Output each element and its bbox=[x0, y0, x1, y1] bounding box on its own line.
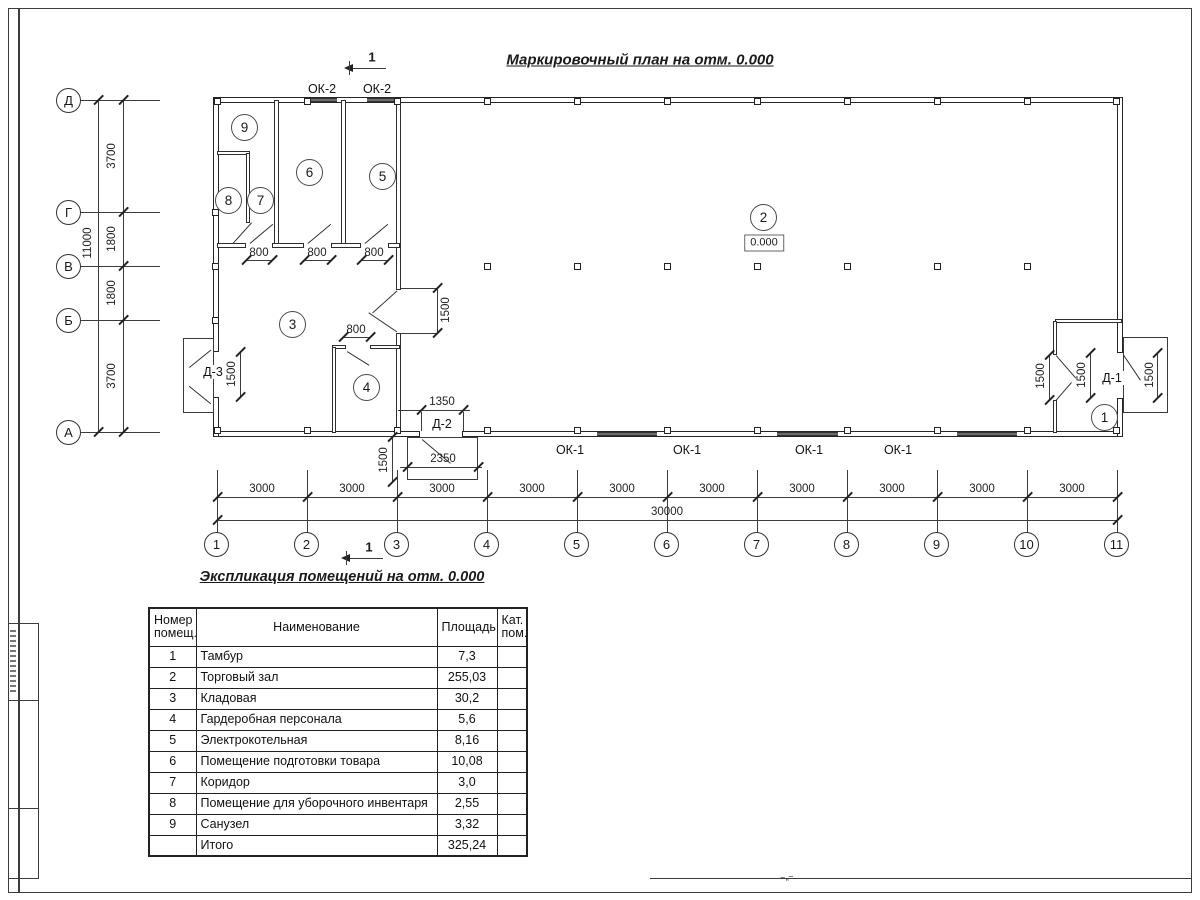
column-marker bbox=[664, 263, 671, 270]
room-area-cell: 30,2 bbox=[437, 688, 497, 709]
titleblock-top-line bbox=[650, 878, 1191, 879]
axis-circle-11: 11 bbox=[1104, 532, 1129, 557]
axis-circle-1: 1 bbox=[204, 532, 229, 557]
room-name-cell: Кладовая bbox=[196, 688, 437, 709]
dim-800: 800 bbox=[346, 324, 365, 336]
room-area-cell: 8,16 bbox=[437, 730, 497, 751]
dim-2350: 2350 bbox=[430, 453, 456, 465]
table-header-row: Номер помещ. Наименование Площадь Кат. п… bbox=[149, 608, 527, 646]
dim-ext-line bbox=[401, 288, 437, 289]
window-label-ok1: ОК-1 bbox=[671, 443, 703, 457]
axis-line bbox=[307, 470, 308, 533]
room-marker-4: 4 bbox=[353, 374, 380, 401]
total-empty-cell bbox=[149, 835, 196, 856]
wall-left-upper bbox=[213, 97, 219, 352]
room-number: 9 bbox=[241, 120, 249, 135]
axis-circle-g: Г bbox=[56, 200, 81, 225]
room-name-cell: Электрокотельная bbox=[196, 730, 437, 751]
partition-corridor-seg4 bbox=[388, 243, 400, 248]
axis-circle-4: 4 bbox=[474, 532, 499, 557]
column-marker bbox=[574, 263, 581, 270]
dim-3000: 3000 bbox=[789, 483, 815, 495]
axis-circle-8: 8 bbox=[834, 532, 859, 557]
column-marker bbox=[484, 98, 491, 105]
dim-1800: 1800 bbox=[106, 226, 118, 252]
column-marker bbox=[664, 98, 671, 105]
window-label-ok1: ОК-1 bbox=[554, 443, 586, 457]
axis-number: 1 bbox=[213, 537, 220, 552]
axis-number: 6 bbox=[663, 537, 670, 552]
header-area: Площадь bbox=[437, 608, 497, 646]
room-number-cell: 3 bbox=[149, 688, 196, 709]
dim-3700: 3700 bbox=[106, 363, 118, 389]
section-mark-number: 1 bbox=[368, 50, 375, 65]
dim-1500: 1500 bbox=[440, 297, 452, 323]
column-marker bbox=[394, 98, 401, 105]
door-leaf bbox=[250, 224, 274, 244]
axis-circle-5: 5 bbox=[564, 532, 589, 557]
axis-number: 8 bbox=[843, 537, 850, 552]
dim-ext-line bbox=[463, 412, 464, 431]
dim-line-1500 bbox=[392, 437, 393, 482]
table-row: 1 Тамбур 7,3 bbox=[149, 646, 527, 667]
stamp-box-line bbox=[38, 623, 39, 878]
table-row: 2 Торговый зал 255,03 bbox=[149, 667, 527, 688]
frame-bottom-line bbox=[8, 892, 1192, 893]
column-marker bbox=[212, 317, 219, 324]
dim-3000: 3000 bbox=[1059, 483, 1085, 495]
room-area-cell: 10,08 bbox=[437, 751, 497, 772]
room-number: 8 bbox=[225, 193, 233, 208]
room-number-cell: 6 bbox=[149, 751, 196, 772]
room-name-cell: Санузел bbox=[196, 814, 437, 835]
axis-circle-3: 3 bbox=[384, 532, 409, 557]
column-marker bbox=[844, 98, 851, 105]
dim-3000: 3000 bbox=[339, 483, 365, 495]
dim-line-1500 bbox=[1090, 353, 1091, 398]
room-marker-7: 7 bbox=[247, 187, 274, 214]
partition-room4-left bbox=[332, 347, 336, 433]
window-ok1 bbox=[777, 432, 838, 436]
dim-11000: 11000 bbox=[82, 227, 94, 258]
axis-letter: Г bbox=[65, 205, 72, 220]
window-label-ok1: ОК-1 bbox=[882, 443, 914, 457]
room-number-cell: 4 bbox=[149, 709, 196, 730]
elevation-mark: 0.000 bbox=[744, 235, 784, 252]
partition-corridor-seg2 bbox=[272, 243, 304, 248]
column-marker bbox=[1024, 98, 1031, 105]
door-leaf bbox=[365, 224, 389, 244]
axis-circle-7: 7 bbox=[744, 532, 769, 557]
dim-3000: 3000 bbox=[969, 483, 995, 495]
dim-1500: 1500 bbox=[226, 361, 238, 387]
table-row: 7 Коридор 3,0 bbox=[149, 772, 527, 793]
header-category: Кат. пом. bbox=[497, 608, 527, 646]
dim-1800: 1800 bbox=[106, 280, 118, 306]
dim-3000: 3000 bbox=[879, 483, 905, 495]
axis-number: 2 bbox=[303, 537, 310, 552]
dim-800: 800 bbox=[249, 247, 268, 259]
dim-3000: 3000 bbox=[699, 483, 725, 495]
dim-3000: 3000 bbox=[609, 483, 635, 495]
plan-title: Маркировочный план на отм. 0.000 bbox=[506, 52, 773, 69]
section-mark-number: 1 bbox=[365, 540, 372, 555]
room-name-cell: Тамбур bbox=[196, 646, 437, 667]
room-number-cell: 8 bbox=[149, 793, 196, 814]
axis-line bbox=[1117, 470, 1118, 533]
room-area-cell: 3,0 bbox=[437, 772, 497, 793]
wall-right-upper bbox=[1117, 97, 1123, 353]
table-row: 3 Кладовая 30,2 bbox=[149, 688, 527, 709]
dim-3700: 3700 bbox=[106, 143, 118, 169]
door-label-d2: Д-2 bbox=[430, 417, 454, 431]
room-category-cell bbox=[497, 751, 527, 772]
room-category-cell bbox=[497, 709, 527, 730]
frame-left-inner-line bbox=[18, 8, 20, 893]
dim-3000: 3000 bbox=[519, 483, 545, 495]
room-number-cell: 1 bbox=[149, 646, 196, 667]
door-leaf bbox=[372, 290, 397, 313]
column-marker bbox=[754, 263, 761, 270]
column-marker bbox=[304, 98, 311, 105]
axis-line bbox=[487, 470, 488, 533]
partition-rooms9-6 bbox=[274, 100, 279, 247]
stamp-box-line bbox=[8, 808, 39, 809]
dim-1500: 1500 bbox=[1144, 362, 1156, 388]
room-name-cell: Помещение для уборочного инвентаря bbox=[196, 793, 437, 814]
column-marker bbox=[934, 263, 941, 270]
room-marker-8: 8 bbox=[215, 187, 242, 214]
dim-800: 800 bbox=[307, 247, 326, 259]
dim-line-left-total bbox=[98, 100, 99, 432]
dim-line-800 bbox=[304, 260, 331, 261]
room-category-cell bbox=[497, 730, 527, 751]
axis-line bbox=[667, 470, 668, 533]
dim-line-800 bbox=[361, 260, 388, 261]
dim-line-800 bbox=[343, 337, 370, 338]
room-name-cell: Гардеробная персонала bbox=[196, 709, 437, 730]
column-marker bbox=[1113, 98, 1120, 105]
column-marker bbox=[574, 98, 581, 105]
explication-table: Номер помещ. Наименование Площадь Кат. п… bbox=[148, 607, 528, 857]
door-leaf bbox=[368, 312, 397, 332]
door-leaf bbox=[1055, 355, 1076, 379]
room-category-cell bbox=[497, 793, 527, 814]
partition-corridor-seg1 bbox=[217, 243, 246, 248]
axis-circle-b: Б bbox=[56, 308, 81, 333]
axis-number: 11 bbox=[1110, 537, 1124, 552]
column-marker bbox=[844, 263, 851, 270]
total-label-cell: Итого bbox=[196, 835, 437, 856]
section-mark-line bbox=[350, 68, 386, 69]
dim-1350: 1350 bbox=[429, 396, 455, 408]
partition-rooms6-5 bbox=[341, 100, 346, 247]
partition-room5-hall-upper bbox=[396, 100, 401, 290]
room-number: 7 bbox=[257, 193, 265, 208]
room-number-cell: 2 bbox=[149, 667, 196, 688]
total-category-cell bbox=[497, 835, 527, 856]
column-marker bbox=[1113, 427, 1120, 434]
room-number-cell: 5 bbox=[149, 730, 196, 751]
window-ok1 bbox=[957, 432, 1017, 436]
axis-circle-d: Д bbox=[56, 88, 81, 113]
dim-line-1350 bbox=[398, 410, 470, 411]
frame-right-line bbox=[1191, 8, 1192, 893]
column-marker bbox=[484, 263, 491, 270]
column-marker bbox=[214, 98, 221, 105]
axis-circle-2: 2 bbox=[294, 532, 319, 557]
room-marker-2: 2 bbox=[750, 204, 777, 231]
room-marker-6: 6 bbox=[296, 159, 323, 186]
room-marker-3: 3 bbox=[279, 311, 306, 338]
room-number-cell: 9 bbox=[149, 814, 196, 835]
room-category-cell bbox=[497, 646, 527, 667]
partition-room4-top-right bbox=[370, 345, 400, 349]
door-label-d1: Д-1 bbox=[1100, 371, 1124, 385]
table-row: 6 Помещение подготовки товара 10,08 bbox=[149, 751, 527, 772]
door-leaf bbox=[308, 224, 332, 244]
room-name-cell: Торговый зал bbox=[196, 667, 437, 688]
column-marker bbox=[484, 427, 491, 434]
column-marker bbox=[754, 98, 761, 105]
axis-number: 5 bbox=[573, 537, 580, 552]
room-number: 2 bbox=[760, 210, 768, 225]
door-label-d3: Д-3 bbox=[201, 365, 225, 379]
table-row: 8 Помещение для уборочного инвентаря 2,5… bbox=[149, 793, 527, 814]
table-row: 9 Санузел 3,32 bbox=[149, 814, 527, 835]
axis-circle-10: 10 bbox=[1014, 532, 1039, 557]
column-marker bbox=[304, 427, 311, 434]
window-label-ok2: ОК-2 bbox=[306, 82, 338, 96]
dim-3000: 3000 bbox=[249, 483, 275, 495]
room-category-cell bbox=[497, 772, 527, 793]
section-mark-tick bbox=[349, 61, 350, 75]
door-leaf bbox=[1055, 382, 1072, 401]
column-marker bbox=[934, 427, 941, 434]
total-area-cell: 325,24 bbox=[437, 835, 497, 856]
room-category-cell bbox=[497, 667, 527, 688]
axis-line bbox=[397, 470, 398, 533]
room-marker-5: 5 bbox=[369, 163, 396, 190]
dim-1500: 1500 bbox=[1035, 363, 1047, 389]
column-marker bbox=[934, 98, 941, 105]
column-marker bbox=[212, 263, 219, 270]
axis-letter: В bbox=[64, 259, 73, 274]
axis-letter: Б bbox=[64, 313, 73, 328]
axis-number: 9 bbox=[933, 537, 940, 552]
window-ok2 bbox=[307, 98, 337, 102]
room-category-cell bbox=[497, 814, 527, 835]
partition-corridor-seg3 bbox=[331, 243, 361, 248]
axis-number: 7 bbox=[753, 537, 760, 552]
axis-line bbox=[937, 470, 938, 533]
section-mark-tick bbox=[346, 551, 347, 565]
table-row: 5 Электрокотельная 8,16 bbox=[149, 730, 527, 751]
partition-tambour-top bbox=[1055, 319, 1122, 323]
window-label-ok2: ОК-2 bbox=[361, 82, 393, 96]
column-marker bbox=[844, 427, 851, 434]
room-name-cell: Помещение подготовки товара bbox=[196, 751, 437, 772]
stamp-vertical-text bbox=[10, 630, 16, 694]
header-number: Номер помещ. bbox=[149, 608, 196, 646]
room-area-cell: 7,3 bbox=[437, 646, 497, 667]
room-category-cell bbox=[497, 688, 527, 709]
section-mark-line bbox=[347, 558, 383, 559]
dim-line-1500 bbox=[1157, 353, 1158, 398]
stamp-box-line bbox=[8, 878, 39, 879]
axis-letter: Д bbox=[64, 93, 73, 108]
dim-ext-line bbox=[401, 333, 437, 334]
window-ok2 bbox=[367, 98, 397, 102]
dim-3000: 3000 bbox=[429, 483, 455, 495]
column-marker bbox=[574, 427, 581, 434]
room-number: 3 bbox=[289, 317, 297, 332]
room-area-cell: 255,03 bbox=[437, 667, 497, 688]
axis-line bbox=[1027, 470, 1028, 533]
axis-circle-9: 9 bbox=[924, 532, 949, 557]
column-marker bbox=[754, 427, 761, 434]
window-ok1 bbox=[597, 432, 657, 436]
stamp-box-line bbox=[8, 623, 39, 624]
axis-circle-6: 6 bbox=[654, 532, 679, 557]
stamp-box-line bbox=[8, 700, 39, 701]
room-number: 1 bbox=[1101, 410, 1109, 425]
dim-line-1500 bbox=[1049, 355, 1050, 400]
dim-800: 800 bbox=[364, 247, 383, 259]
room-number: 4 bbox=[363, 380, 371, 395]
frame-top-line bbox=[8, 8, 1192, 9]
column-marker bbox=[214, 427, 221, 434]
room-number-cell: 7 bbox=[149, 772, 196, 793]
wall-bottom-left bbox=[213, 431, 420, 437]
room-area-cell: 2,55 bbox=[437, 793, 497, 814]
axis-line bbox=[847, 470, 848, 533]
dim-line-2350 bbox=[400, 467, 482, 468]
partition-tambour-left-lower bbox=[1053, 400, 1057, 433]
room-marker-9: 9 bbox=[231, 114, 258, 141]
partition-room8-right bbox=[246, 153, 250, 223]
dim-line-bottom-total bbox=[217, 520, 1117, 521]
dim-1500: 1500 bbox=[378, 447, 390, 473]
window-label-ok1: ОК-1 bbox=[793, 443, 825, 457]
table-total-row: Итого 325,24 bbox=[149, 835, 527, 856]
column-marker bbox=[1024, 427, 1031, 434]
column-marker bbox=[212, 209, 219, 216]
room-name-cell: Коридор bbox=[196, 772, 437, 793]
dim-line-1500 bbox=[240, 352, 241, 397]
room-area-cell: 5,6 bbox=[437, 709, 497, 730]
axis-circle-a: А bbox=[56, 420, 81, 445]
header-name: Наименование bbox=[196, 608, 437, 646]
dim-1500: 1500 bbox=[1076, 362, 1088, 388]
column-marker bbox=[664, 427, 671, 434]
axis-circle-v: В bbox=[56, 254, 81, 279]
dim-ext-line bbox=[421, 412, 422, 431]
dim-line-1500 bbox=[437, 288, 438, 333]
column-marker bbox=[1024, 263, 1031, 270]
axis-number: 3 bbox=[393, 537, 400, 552]
room-number: 5 bbox=[379, 169, 387, 184]
axis-line bbox=[577, 470, 578, 533]
axis-line bbox=[757, 470, 758, 533]
room-number: 6 bbox=[306, 165, 314, 180]
frame-left-line bbox=[8, 8, 9, 893]
dim-30000: 30000 bbox=[651, 506, 683, 518]
axis-number: 10 bbox=[1019, 537, 1033, 552]
door-leaf bbox=[232, 222, 252, 244]
drawing-sheet: ~„~ Маркировочный план на отм. 0.000 1 1 bbox=[0, 0, 1200, 900]
axis-letter: А bbox=[64, 425, 73, 440]
door-leaf bbox=[347, 351, 370, 366]
table-row: 4 Гардеробная персонала 5,6 bbox=[149, 709, 527, 730]
dim-line-800 bbox=[246, 260, 272, 261]
room-area-cell: 3,32 bbox=[437, 814, 497, 835]
explication-title: Экспликация помещений на отм. 0.000 bbox=[200, 569, 485, 585]
axis-line bbox=[217, 470, 218, 533]
signature-mark: ~„~ bbox=[779, 871, 794, 883]
axis-number: 4 bbox=[483, 537, 490, 552]
room-marker-1: 1 bbox=[1091, 404, 1118, 431]
